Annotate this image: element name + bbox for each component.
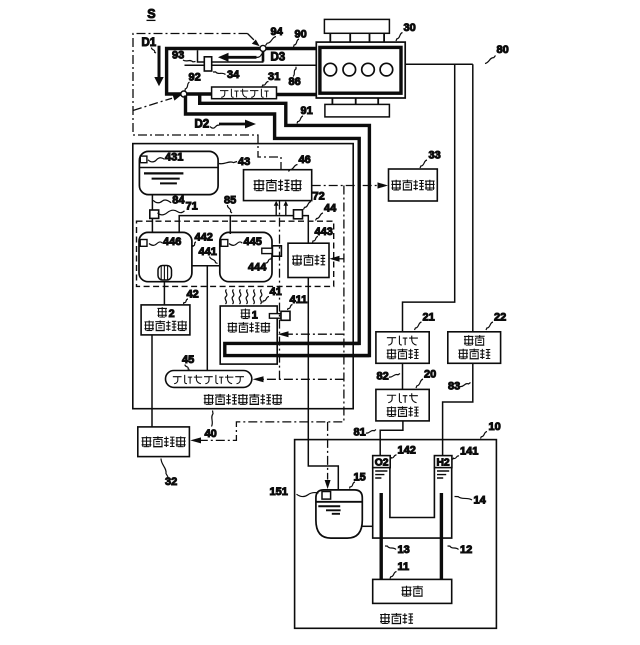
svg-text:80: 80 [497,44,509,56]
svg-text:43: 43 [238,156,250,168]
svg-text:40: 40 [205,428,217,440]
svg-text:442: 442 [195,232,213,244]
svg-text:45: 45 [182,354,194,366]
svg-text:85: 85 [224,195,236,207]
svg-text:13: 13 [398,544,410,556]
svg-text:D2: D2 [195,119,210,131]
svg-text:42: 42 [187,289,199,301]
svg-text:31: 31 [268,71,280,83]
svg-text:15: 15 [354,472,366,484]
svg-text:446: 446 [163,236,181,248]
svg-text:30: 30 [404,22,416,34]
svg-text:D1: D1 [142,37,157,49]
svg-text:1: 1 [252,309,258,321]
svg-text:92: 92 [189,72,201,84]
svg-text:33: 33 [429,150,441,162]
svg-text:12: 12 [460,544,472,556]
svg-text:46: 46 [299,154,311,166]
svg-text:D3: D3 [271,52,286,64]
svg-text:71: 71 [186,201,198,213]
svg-text:431: 431 [165,152,183,164]
svg-text:20: 20 [424,369,436,381]
svg-text:10: 10 [489,421,501,433]
svg-text:142: 142 [398,445,416,457]
svg-text:82: 82 [377,371,389,383]
svg-text:84: 84 [172,194,185,206]
svg-text:34: 34 [227,69,240,81]
svg-text:H2: H2 [437,457,450,468]
svg-text:445: 445 [244,236,262,248]
svg-text:86: 86 [289,76,301,88]
svg-text:2: 2 [169,308,175,320]
svg-text:93: 93 [172,50,184,62]
svg-text:94: 94 [271,26,284,38]
svg-text:72: 72 [313,191,325,203]
svg-text:81: 81 [354,427,366,439]
svg-text:32: 32 [165,476,177,488]
svg-text:441: 441 [199,246,217,258]
svg-text:91: 91 [301,105,313,117]
svg-text:O2: O2 [375,457,389,468]
svg-text:44: 44 [324,203,337,215]
svg-text:444: 444 [248,262,267,274]
svg-text:141: 141 [460,446,478,458]
svg-text:21: 21 [423,312,435,324]
svg-text:11: 11 [398,561,410,573]
svg-text:14: 14 [474,495,487,507]
svg-text:83: 83 [448,381,460,393]
svg-text:90: 90 [295,29,307,41]
svg-text:S: S [147,7,155,21]
svg-text:22: 22 [494,312,506,324]
svg-text:151: 151 [270,486,288,498]
